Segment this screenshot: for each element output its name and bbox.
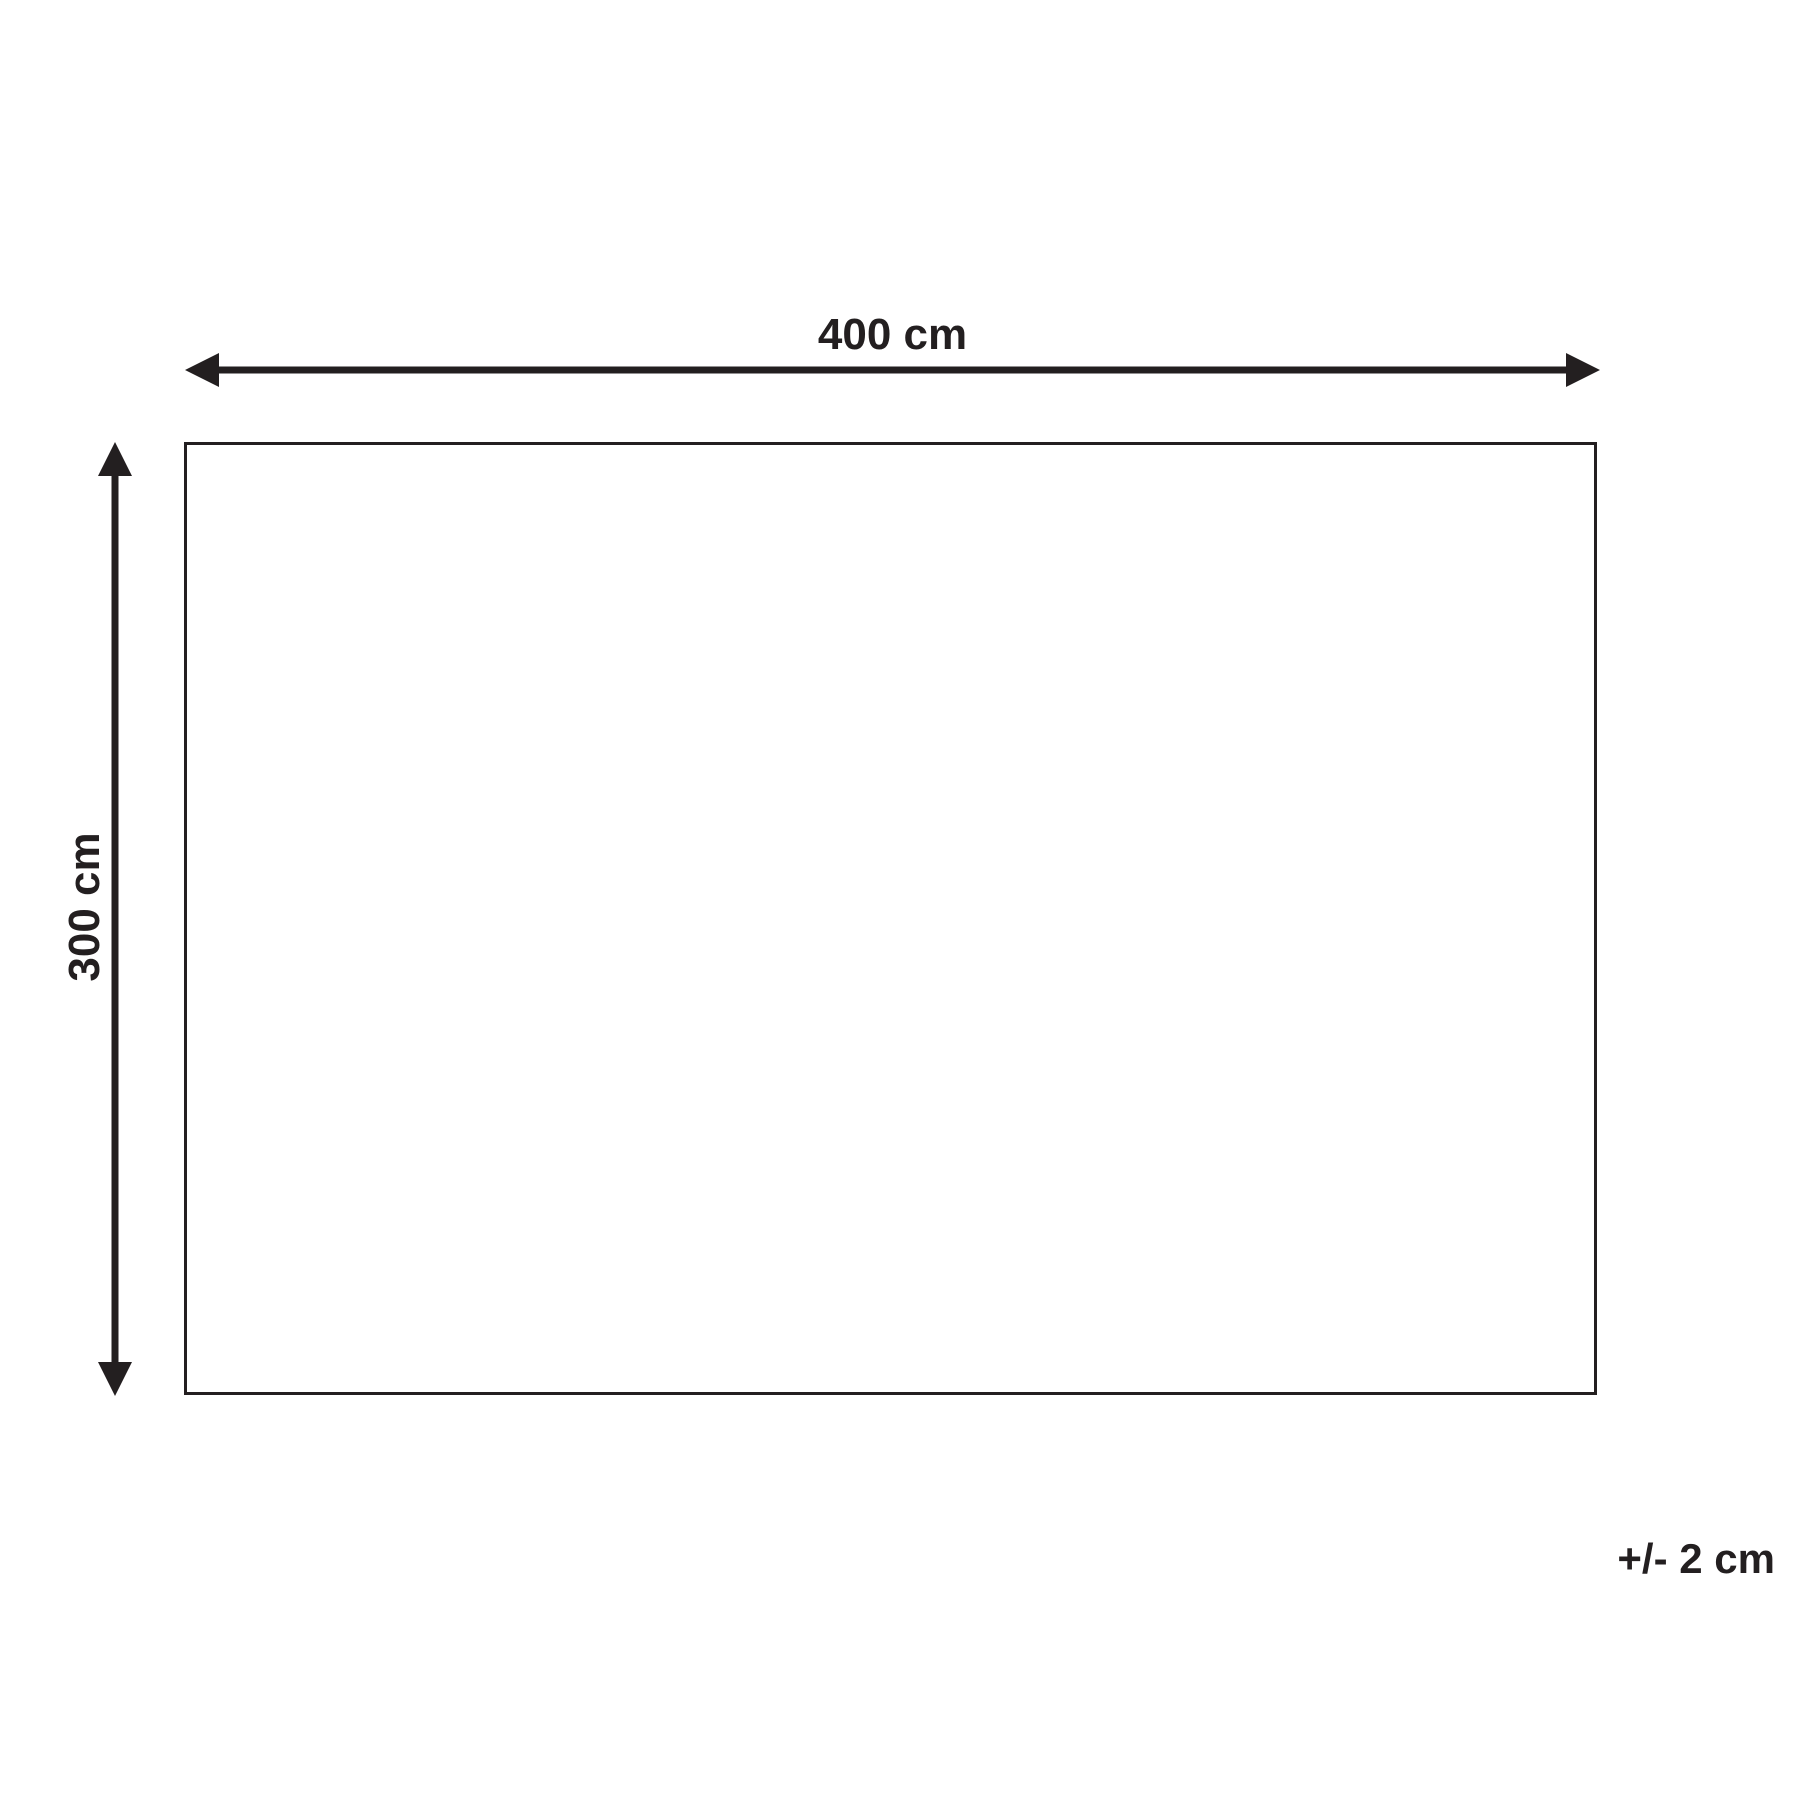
product-outline-rectangle: [184, 442, 1597, 1395]
dimension-diagram: 400 cm 300 cm +/- 2 cm: [0, 0, 1800, 1800]
width-dimension-arrow-icon: [185, 342, 1600, 398]
tolerance-label: +/- 2 cm: [1617, 1538, 1775, 1580]
height-dimension-arrow-icon: [87, 442, 143, 1396]
